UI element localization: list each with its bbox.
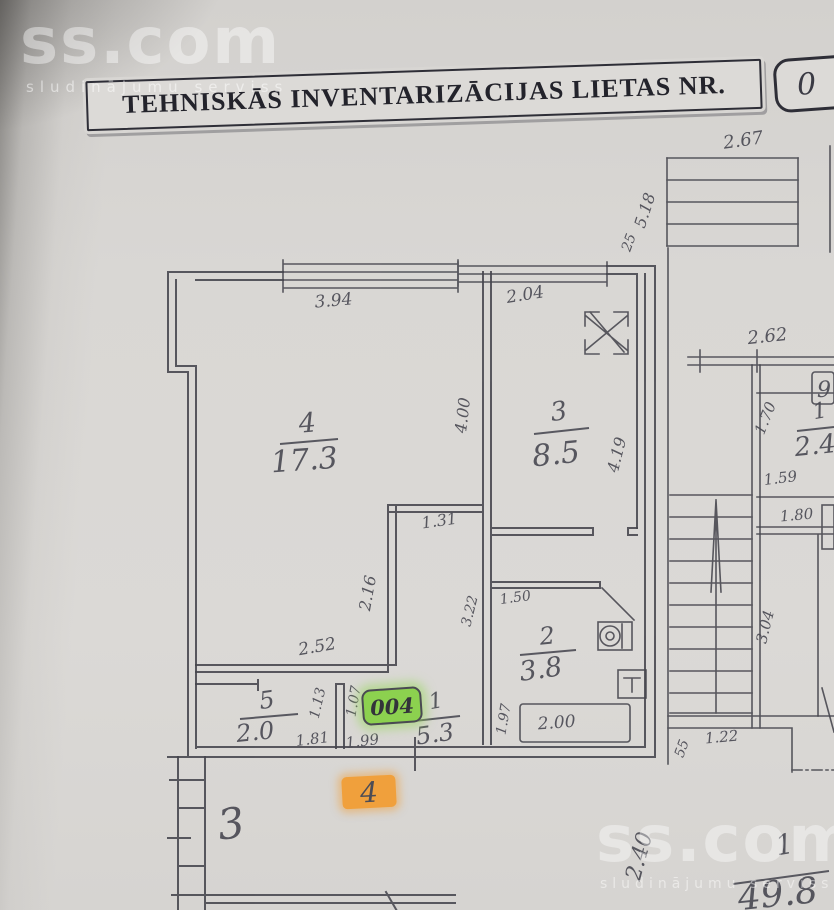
room5-number: 5 (257, 685, 276, 715)
room4-area: 17.3 (270, 441, 339, 481)
room1-area: 5.3 (414, 718, 456, 751)
toilet-cistern (598, 622, 632, 650)
windows (283, 146, 830, 292)
room1-number: 1 (427, 688, 445, 715)
apartment-highlight-orange: 4 (341, 775, 397, 810)
toilet-bowl (600, 626, 620, 646)
room3-area: 8.5 (530, 435, 581, 475)
measure-204: 2.04 (504, 282, 546, 308)
measure-131: 1.31 (420, 509, 458, 533)
measure-252: 2.52 (296, 634, 338, 660)
measure-322: 3.22 (459, 594, 482, 628)
measure-304: 3.04 (752, 608, 778, 645)
measure-394: 3.94 (314, 289, 353, 312)
measure-159: 1.59 (763, 467, 799, 489)
stair-direction-arrow (711, 500, 721, 713)
measure-199: 1.99 (345, 730, 381, 752)
page-title: TEHNISKĀS INVENTARIZĀCIJAS LIETAS NR. (122, 70, 727, 120)
measure-267: 2.67 (721, 127, 765, 154)
room5-area: 2.0 (234, 716, 276, 748)
measure-113: 1.13 (307, 686, 330, 720)
total-number: 1 (773, 827, 796, 863)
apartment-number-label: 4 (359, 775, 379, 809)
case-number: 0 (796, 66, 817, 102)
measure-216: 2.16 (355, 574, 380, 613)
door-number-label: 004 (369, 692, 414, 720)
room2-area: 3.8 (517, 651, 564, 688)
measure-122: 1.22 (704, 727, 739, 748)
measure-240: 2.40 (621, 829, 658, 884)
room3-number: 3 (549, 396, 570, 428)
vent-shaft (585, 312, 628, 354)
measurement-labels: 3.94 2.04 2.67 5.18 25 2.62 4.00 4.19 1.… (295, 127, 815, 884)
neighbor-room-area: 2.4 (792, 429, 834, 463)
interior-walls (196, 272, 637, 748)
door-leaf (602, 588, 634, 620)
room4-number: 4 (296, 407, 317, 439)
measure-55: 55 (672, 737, 693, 759)
measure-400: 4.00 (451, 396, 474, 435)
room2-number: 2 (537, 621, 556, 651)
measure-197: 1.97 (493, 702, 514, 736)
measure-170: 1.70 (751, 399, 780, 437)
measure-262: 2.62 (745, 324, 788, 349)
measure-25: 25 (618, 231, 640, 254)
door-number-sticker-green: 004 (361, 686, 423, 726)
floor-mark: 3 (214, 798, 247, 850)
scanned-floor-plan-page: ss.com sludinājumu serviss ss.com sludin… (0, 0, 834, 910)
total-area: 49.8 (735, 870, 820, 910)
measure-180: 1.80 (779, 505, 814, 526)
measure-200: 2.00 (536, 712, 576, 735)
measure-518: 5.18 (630, 190, 659, 230)
floor-plan-drawing: 4 17.3 3 8.5 2 3.8 5 2.0 1 5.3 1 2.4 9 1… (0, 0, 834, 910)
case-number-box: 0 (772, 53, 834, 114)
neighbor-door-number: 9 (817, 378, 831, 403)
lower-building-walls (168, 757, 455, 910)
measure-150: 1.50 (499, 588, 532, 608)
measure-419: 4.19 (603, 435, 630, 475)
